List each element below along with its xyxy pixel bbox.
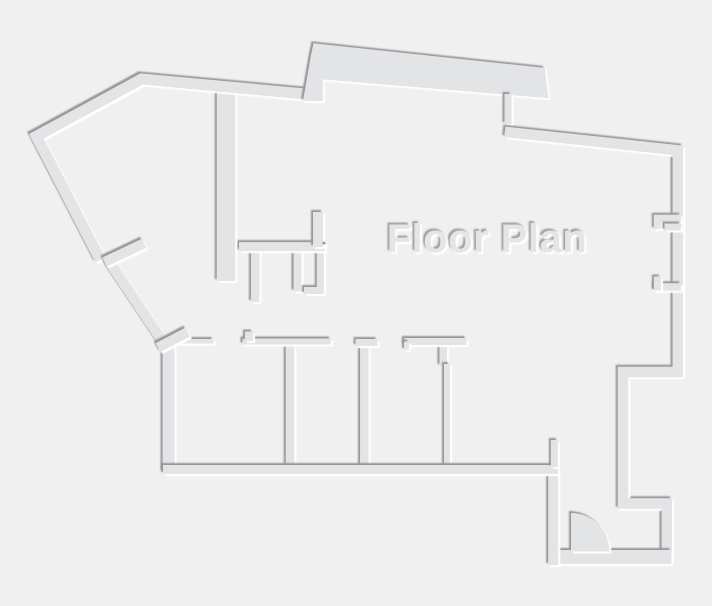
svg-text:Floor Plan: Floor Plan [387,217,588,261]
